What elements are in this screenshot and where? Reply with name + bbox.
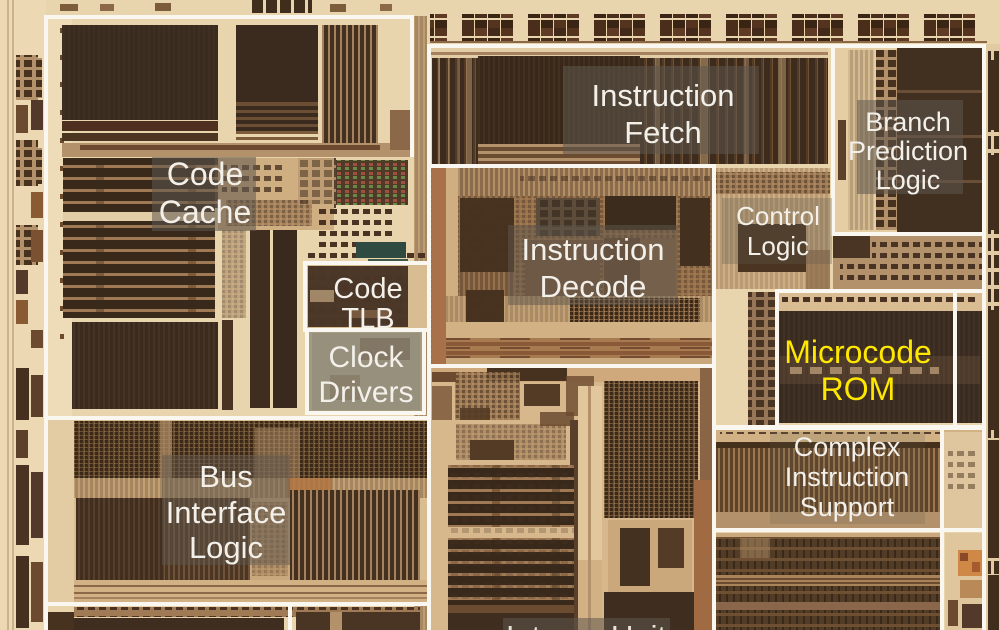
svg-text:Complex: Complex — [794, 432, 901, 462]
svg-text:Support: Support — [800, 492, 895, 522]
svg-text:ROM: ROM — [821, 371, 896, 407]
svg-text:Cache: Cache — [159, 194, 252, 230]
svg-text:Code: Code — [333, 273, 402, 305]
svg-text:Prediction: Prediction — [848, 136, 968, 166]
svg-text:Decode: Decode — [540, 269, 647, 304]
svg-text:Code: Code — [167, 156, 244, 192]
svg-text:TLB: TLB — [341, 303, 394, 335]
svg-text:Microcode: Microcode — [784, 334, 932, 370]
svg-text:Instruction: Instruction — [591, 78, 734, 113]
svg-text:Branch: Branch — [865, 107, 951, 137]
svg-text:Logic: Logic — [876, 165, 941, 195]
svg-text:Clock: Clock — [328, 341, 404, 374]
svg-text:Logic: Logic — [747, 231, 809, 261]
svg-text:Integer Unit: Integer Unit — [506, 619, 667, 630]
svg-text:Instruction: Instruction — [785, 462, 910, 492]
svg-text:Bus: Bus — [199, 459, 252, 494]
svg-text:Instruction: Instruction — [521, 232, 664, 267]
svg-text:Fetch: Fetch — [624, 115, 702, 150]
svg-text:Logic: Logic — [189, 530, 263, 565]
svg-text:Control: Control — [736, 201, 820, 231]
svg-text:Drivers: Drivers — [319, 376, 414, 409]
svg-text:Interface: Interface — [166, 495, 287, 530]
